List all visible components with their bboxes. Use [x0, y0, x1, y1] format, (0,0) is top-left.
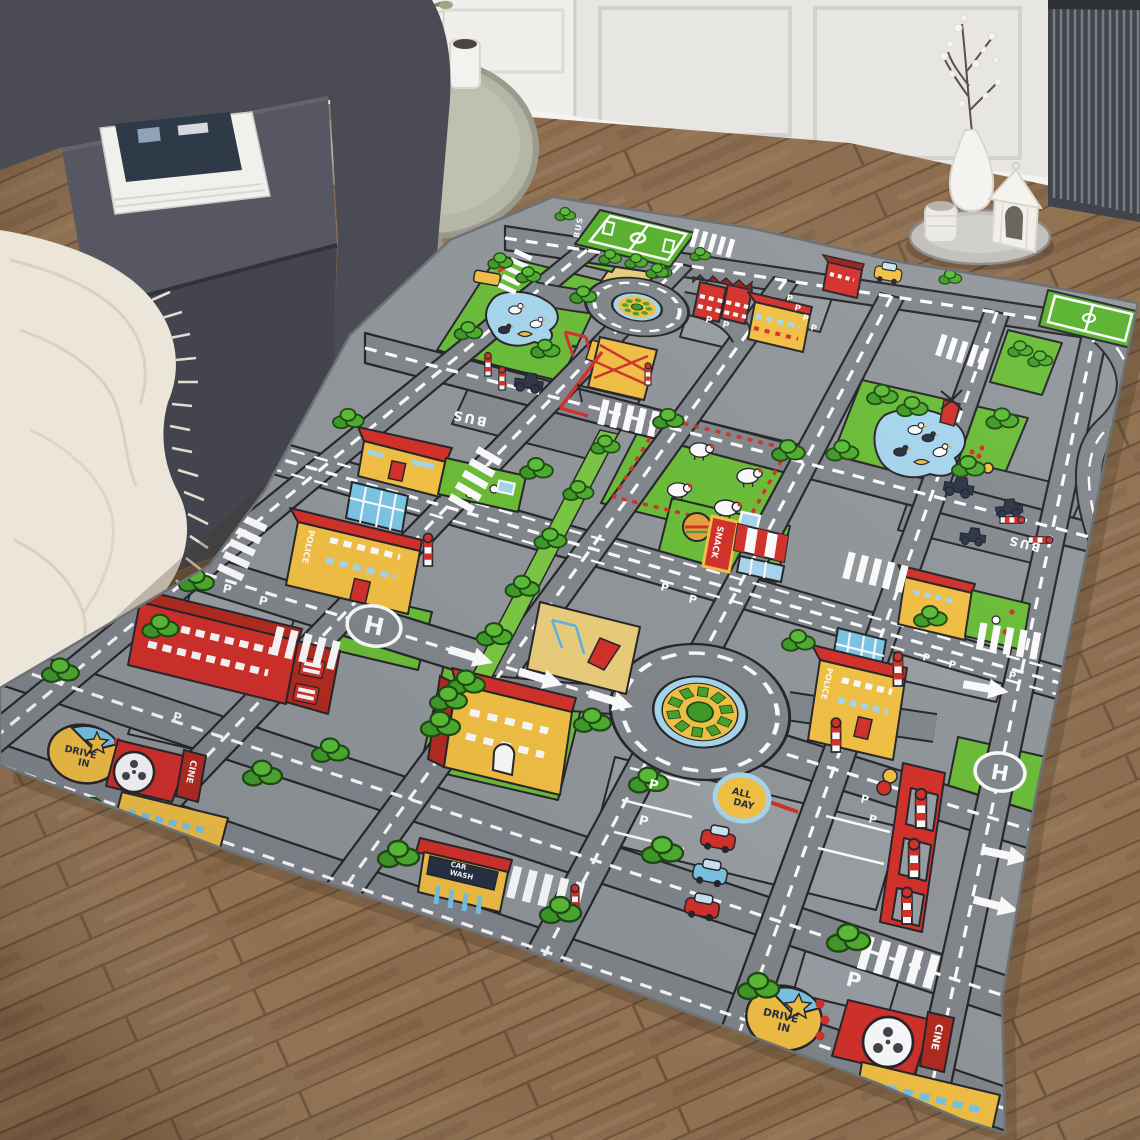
radiator	[1048, 0, 1140, 222]
candle-jar	[450, 39, 480, 88]
scene-canvas: SNACK POLICE	[0, 0, 1140, 1140]
lantern-door	[1005, 206, 1023, 240]
leaf	[439, 1, 453, 9]
photo-scene: SNACK POLICE	[0, 0, 1140, 1140]
magazine	[100, 112, 270, 214]
small-jar	[925, 201, 957, 242]
